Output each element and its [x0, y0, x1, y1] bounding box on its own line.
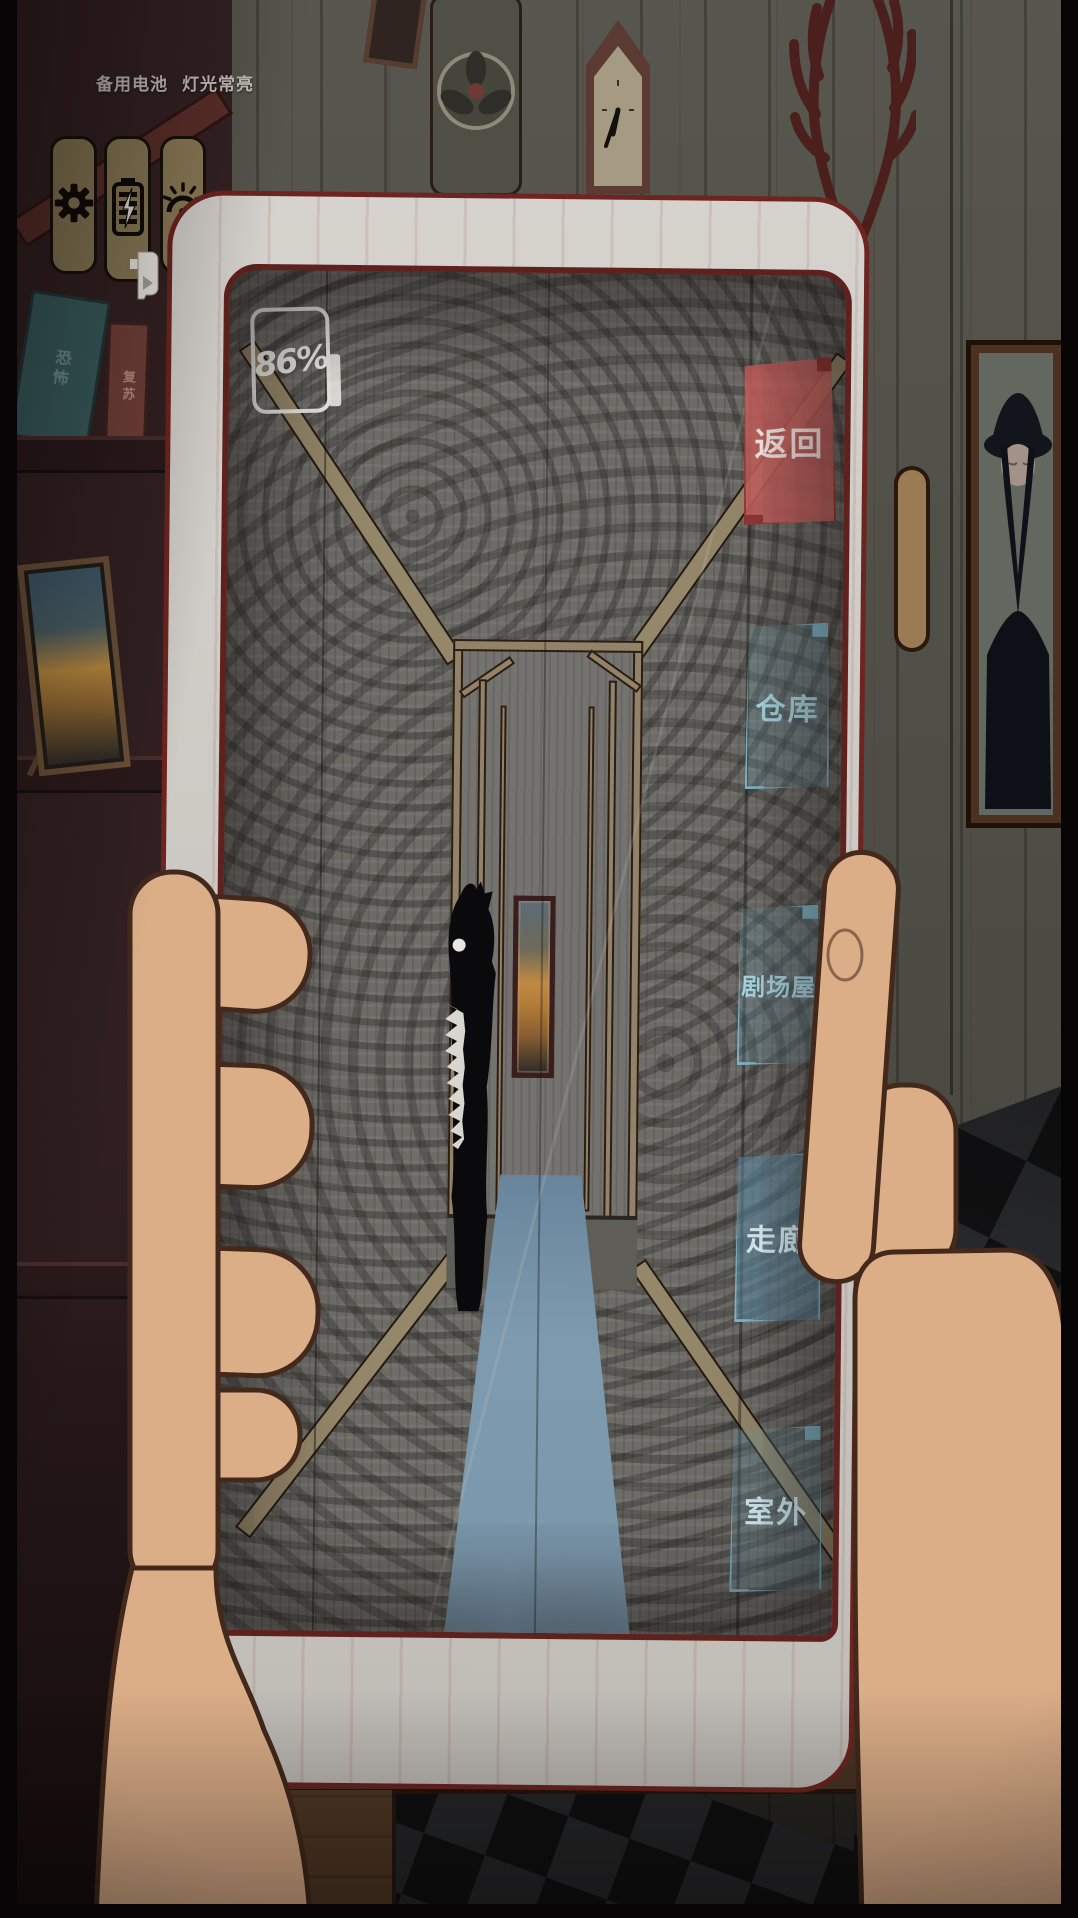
warehouse-button[interactable]: 仓库 [745, 622, 831, 790]
hud-label-light-always-on: 灯光常亮 [182, 70, 254, 95]
woman-portrait [966, 340, 1066, 828]
book-spine-label: 复苏 [117, 370, 137, 405]
battery-charging-icon [111, 178, 145, 240]
warehouse-button-label: 仓库 [755, 684, 819, 729]
corner-tab [726, 1578, 748, 1594]
book-teal: 恐怖 [9, 290, 111, 449]
right-hand [780, 830, 1078, 1918]
door-frame [583, 706, 594, 1211]
small-wall-frame [363, 0, 427, 69]
door-handle [894, 466, 930, 652]
shadow-monster [434, 877, 499, 1318]
right-edge-bar [1061, 0, 1078, 1918]
game-scene: 恐怖 复苏 [0, 0, 1078, 1918]
battery-indicator: 86% [250, 306, 332, 414]
fan-icon [433, 0, 519, 193]
woman-figure [979, 353, 1053, 809]
book-red: 复苏 [104, 321, 151, 452]
hand-forearm [855, 1250, 1078, 1918]
corner-tab [742, 775, 764, 791]
wall-fan [430, 0, 522, 196]
settings-button[interactable] [50, 136, 97, 274]
scream-painting [512, 896, 556, 1078]
back-button[interactable]: 返回 [743, 357, 836, 525]
gear-icon [53, 182, 95, 228]
back-button-label: 返回 [754, 417, 824, 465]
corner-brace [459, 656, 515, 698]
left-hand [60, 840, 340, 1918]
corner-tab [812, 622, 831, 637]
hall-frame [627, 641, 644, 1286]
forearm [96, 1568, 310, 1918]
book-spine-label: 恐怖 [45, 347, 75, 390]
corner-tab [741, 515, 763, 527]
palm [130, 872, 218, 1592]
scream-picture-small [17, 556, 131, 776]
left-edge-bar [0, 0, 17, 1918]
battery-nub [328, 354, 341, 406]
bottom-edge-bar [0, 1904, 1078, 1918]
door-frame [603, 681, 617, 1241]
hall-frame [453, 639, 643, 653]
charger-plug-icon [130, 250, 162, 304]
corner-tab [734, 1051, 756, 1067]
battery-percent: 86% [252, 336, 329, 384]
corner-tab [731, 1308, 753, 1324]
hud-label-backup-battery: 备用电池 [96, 70, 168, 95]
